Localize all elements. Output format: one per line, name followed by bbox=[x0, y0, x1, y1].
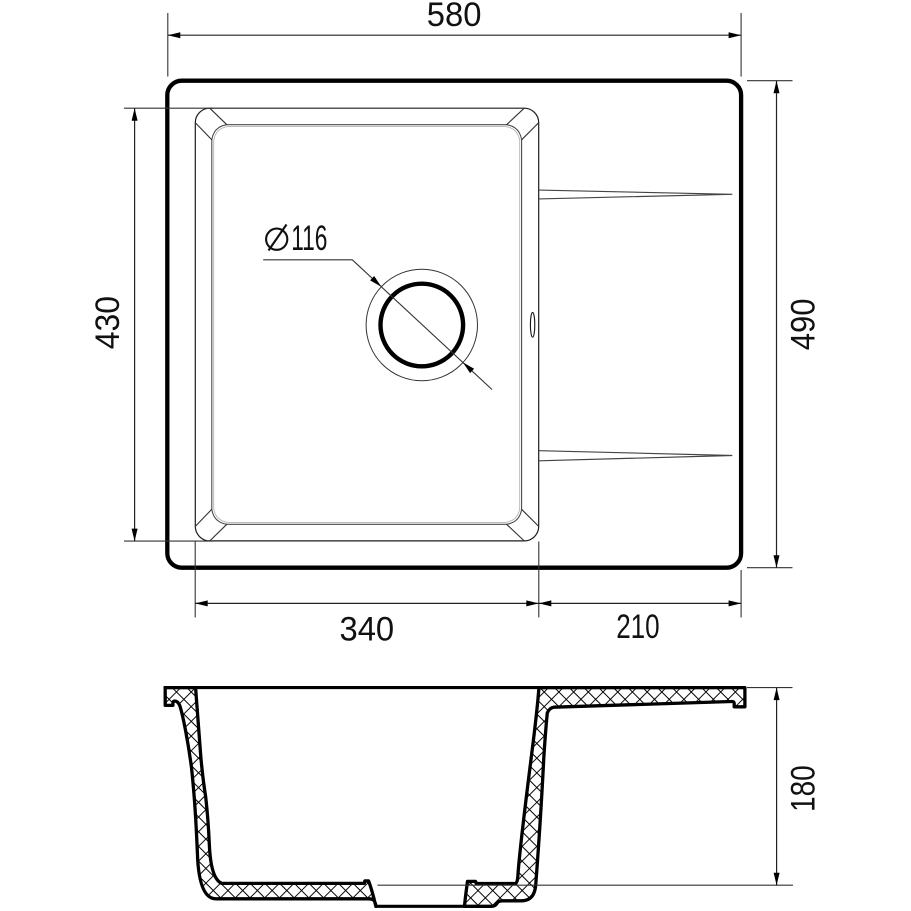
svg-text:430: 430 bbox=[89, 296, 127, 349]
svg-text:180: 180 bbox=[784, 765, 822, 812]
svg-text:580: 580 bbox=[427, 0, 482, 34]
svg-text:340: 340 bbox=[340, 611, 395, 649]
svg-text:210: 210 bbox=[616, 608, 659, 646]
svg-text:490: 490 bbox=[783, 299, 822, 351]
svg-text:116: 116 bbox=[291, 219, 327, 258]
